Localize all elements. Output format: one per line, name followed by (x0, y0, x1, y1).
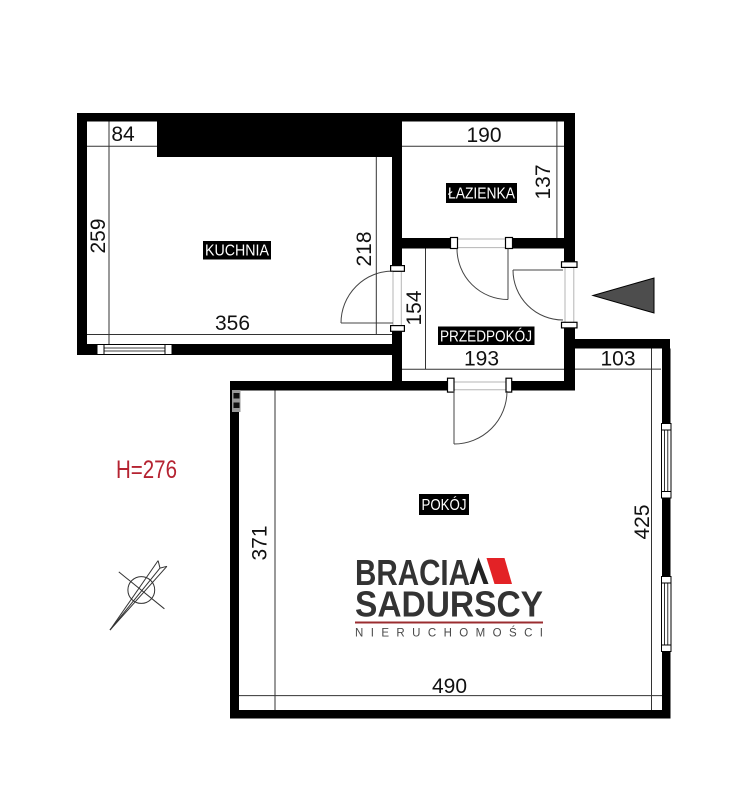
svg-text:356: 356 (215, 312, 250, 335)
svg-text:ŁAZIENKA: ŁAZIENKA (448, 186, 515, 203)
svg-text:H=276: H=276 (116, 456, 177, 484)
svg-text:KUCHNIA: KUCHNIA (205, 243, 269, 260)
svg-text:137: 137 (532, 164, 555, 199)
svg-text:425: 425 (631, 504, 654, 539)
svg-text:NIERUCHOMOŚCI: NIERUCHOMOŚCI (355, 627, 543, 640)
svg-text:190: 190 (466, 124, 501, 147)
svg-text:84: 84 (111, 123, 135, 146)
svg-text:490: 490 (432, 675, 467, 698)
svg-text:154: 154 (403, 290, 426, 325)
svg-text:SADURSCY: SADURSCY (355, 584, 543, 625)
svg-text:103: 103 (600, 348, 635, 371)
svg-text:POKÓJ: POKÓJ (422, 495, 467, 514)
svg-text:PRZEDPOKÓJ: PRZEDPOKÓJ (440, 327, 532, 346)
svg-text:371: 371 (249, 525, 272, 560)
svg-text:259: 259 (87, 218, 110, 253)
svg-text:218: 218 (353, 231, 376, 266)
svg-text:193: 193 (464, 348, 499, 371)
